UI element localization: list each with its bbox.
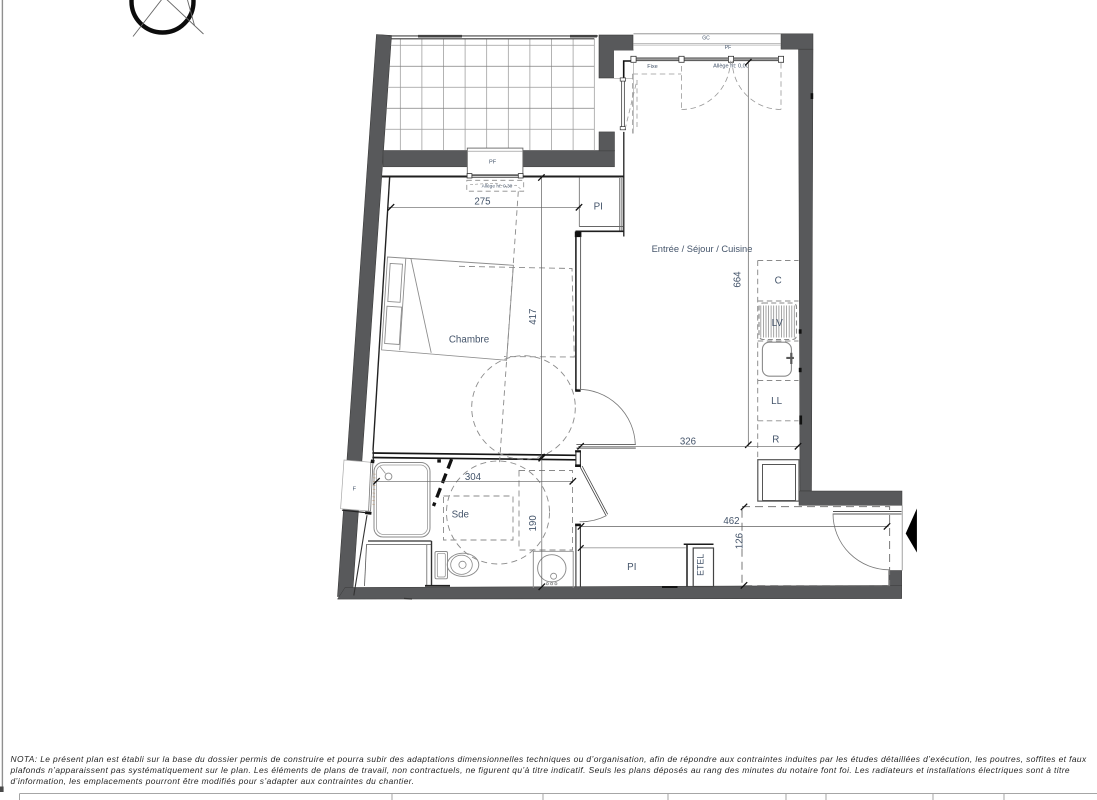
svg-text:417: 417 (528, 309, 539, 325)
svg-text:plafonds n’apparaissent pas sy: plafonds n’apparaissent pas systématique… (10, 765, 1070, 775)
svg-text:LL: LL (771, 396, 782, 407)
svg-text:NOTA: Le présent plan est étab: NOTA: Le présent plan est établi sur la … (11, 754, 1087, 764)
svg-text:LV: LV (772, 318, 784, 329)
svg-text:126: 126 (734, 533, 745, 549)
svg-text:462: 462 (723, 516, 739, 527)
svg-text:275: 275 (474, 197, 490, 208)
svg-text:GC: GC (702, 36, 710, 42)
svg-text:Fixe: Fixe (647, 64, 658, 70)
svg-text:304: 304 (465, 472, 482, 483)
svg-text:326: 326 (680, 436, 696, 447)
svg-text:PF: PF (489, 160, 497, 166)
svg-text:Allège ht: 0,00: Allège ht: 0,00 (713, 64, 749, 70)
svg-text:PI: PI (594, 202, 603, 213)
svg-text:PF: PF (725, 45, 731, 51)
svg-text:R: R (772, 435, 779, 446)
svg-text:Allège ht. 0,30: Allège ht. 0,30 (482, 183, 513, 189)
svg-text:Entrée / Séjour / Cuisine: Entrée / Séjour / Cuisine (652, 244, 753, 254)
svg-text:C: C (775, 275, 782, 286)
svg-text:664: 664 (733, 271, 744, 288)
svg-text:Chambre: Chambre (449, 335, 490, 346)
svg-text:ETEL: ETEL (696, 554, 706, 576)
svg-text:F: F (353, 486, 357, 492)
svg-text:Sde: Sde (452, 510, 470, 521)
svg-text:PI: PI (627, 562, 636, 573)
svg-text:d’information, les emplacement: d’information, les emplacements pourront… (11, 776, 415, 786)
svg-text:190: 190 (528, 515, 539, 532)
